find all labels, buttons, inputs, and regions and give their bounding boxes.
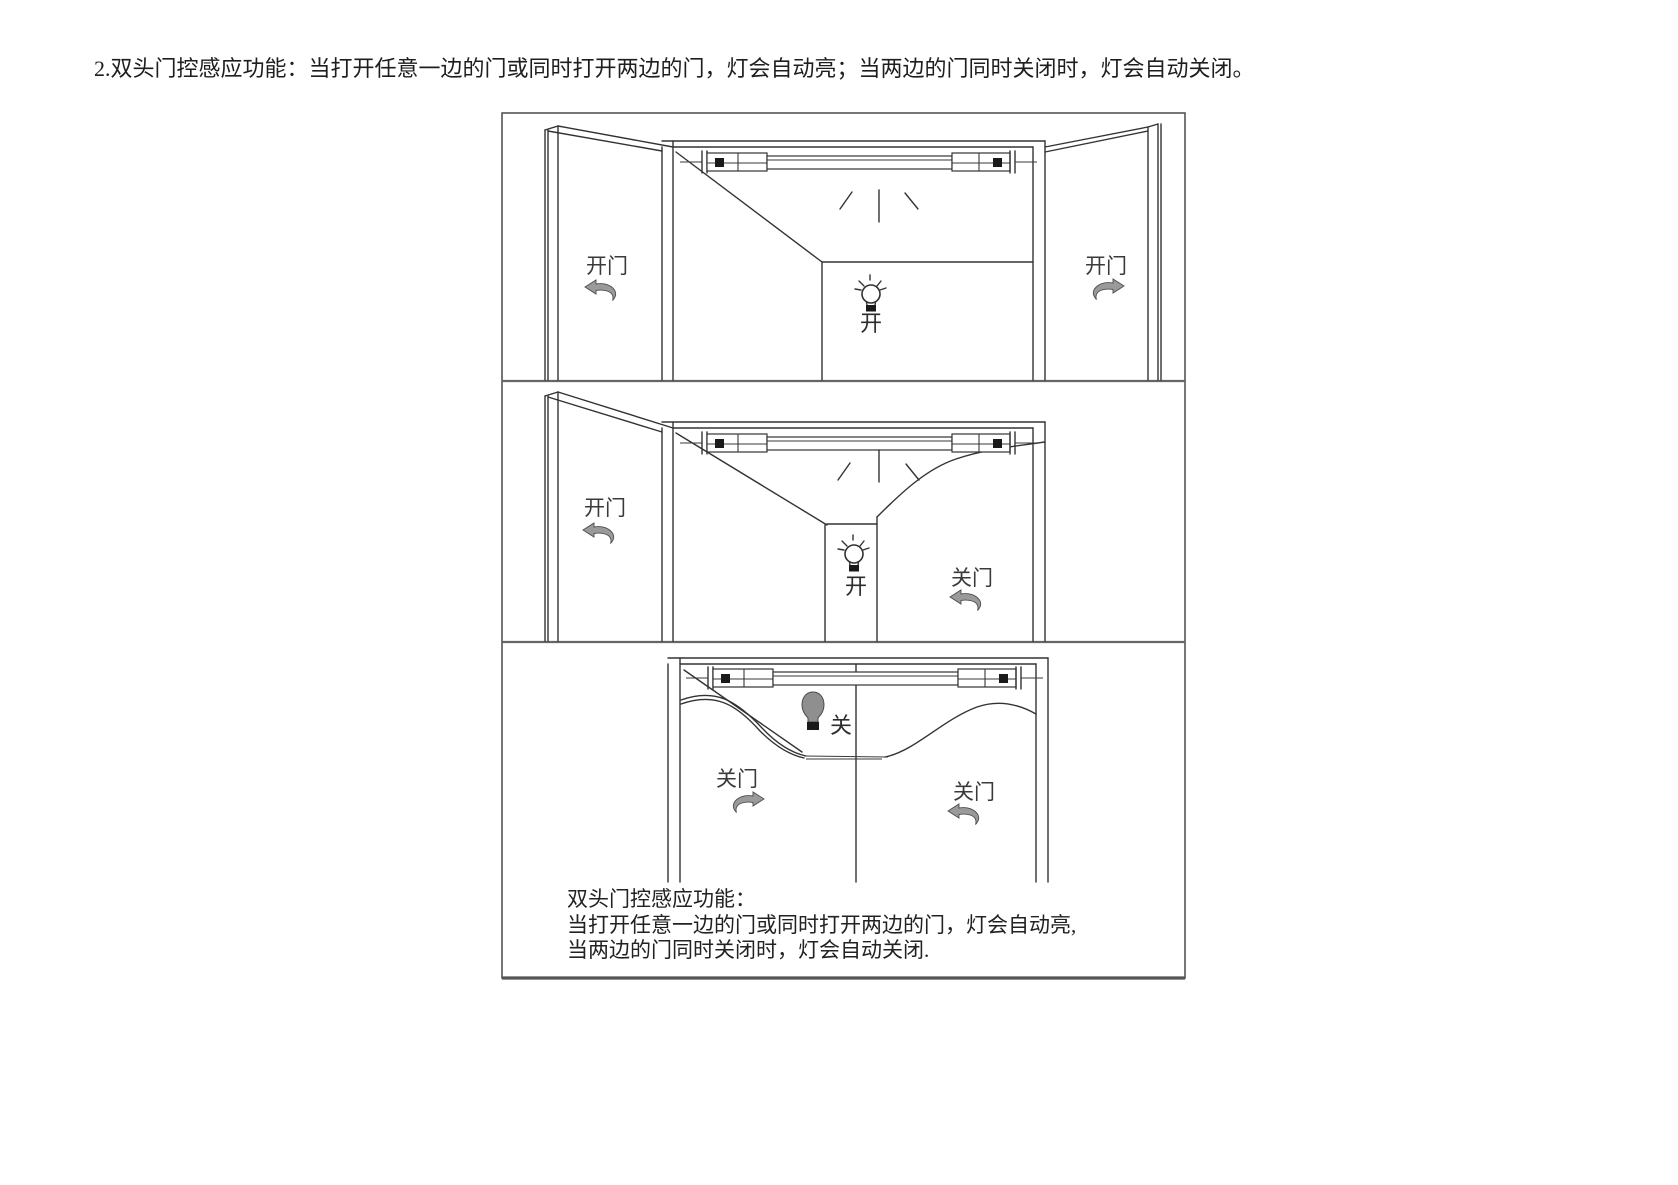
cabinet-frame (662, 141, 1045, 380)
caption-line-1: 双头门控感应功能： (567, 887, 756, 911)
open-right-arrow-icon (1093, 279, 1124, 300)
close-left-arrow-icon (733, 792, 764, 813)
cabinet-interior (676, 152, 1033, 380)
right-door-action-label: 关门 (953, 780, 995, 804)
light-fixture (686, 667, 1043, 689)
right-door-action-label: 关门 (951, 566, 993, 590)
panel-both-doors-closing: 关 关门 关门 双头门控感应功能： 当打开任意一边的门或同时打开两边的门，灯会自… (567, 658, 1076, 962)
cabinet-frame (662, 422, 1045, 641)
bulb-off-icon (802, 692, 824, 730)
figure-border (502, 113, 1185, 978)
light-rays (840, 190, 918, 222)
light-fixture (680, 151, 1037, 173)
right-door-action-label: 开门 (1085, 254, 1127, 278)
bulb-on-icon (855, 275, 886, 312)
caption-line-2: 当打开任意一边的门或同时打开两边的门，灯会自动亮, (567, 913, 1076, 937)
open-left-arrow-icon (583, 523, 614, 544)
figure-caption: 双头门控感应功能： 当打开任意一边的门或同时打开两边的门，灯会自动亮, 当两边的… (567, 887, 1076, 962)
bulb-state-label: 关 (830, 713, 852, 738)
left-door-action-label: 开门 (584, 496, 626, 520)
bulb-state-label: 开 (845, 574, 867, 599)
left-open-door (545, 126, 673, 380)
bulb-state-label: 开 (860, 311, 882, 336)
close-right-arrow-icon (950, 590, 981, 611)
cabinet-interior (676, 433, 877, 641)
panel-one-door-open: 开 开门 关门 (545, 392, 1045, 641)
open-left-arrow-icon (585, 280, 616, 301)
caption-line-3: 当两边的门同时关闭时，灯会自动关闭. (567, 938, 929, 962)
right-open-door (1045, 124, 1161, 380)
panel-both-doors-open: 开 开门 开门 (545, 124, 1161, 380)
light-rays (838, 450, 919, 482)
left-door-action-label: 开门 (586, 254, 628, 278)
close-right-arrow-icon (948, 804, 979, 825)
manual-page: 2.双头门控感应功能：当打开任意一边的门或同时打开两边的门，灯会自动亮；当两边的… (0, 0, 1678, 1185)
closing-door-curve (877, 442, 1045, 517)
light-fixture (680, 432, 1037, 454)
left-door-action-label: 关门 (716, 767, 758, 791)
bulb-on-icon (838, 535, 869, 572)
door-sensor-diagram: 开 开门 开门 (0, 0, 1678, 1185)
